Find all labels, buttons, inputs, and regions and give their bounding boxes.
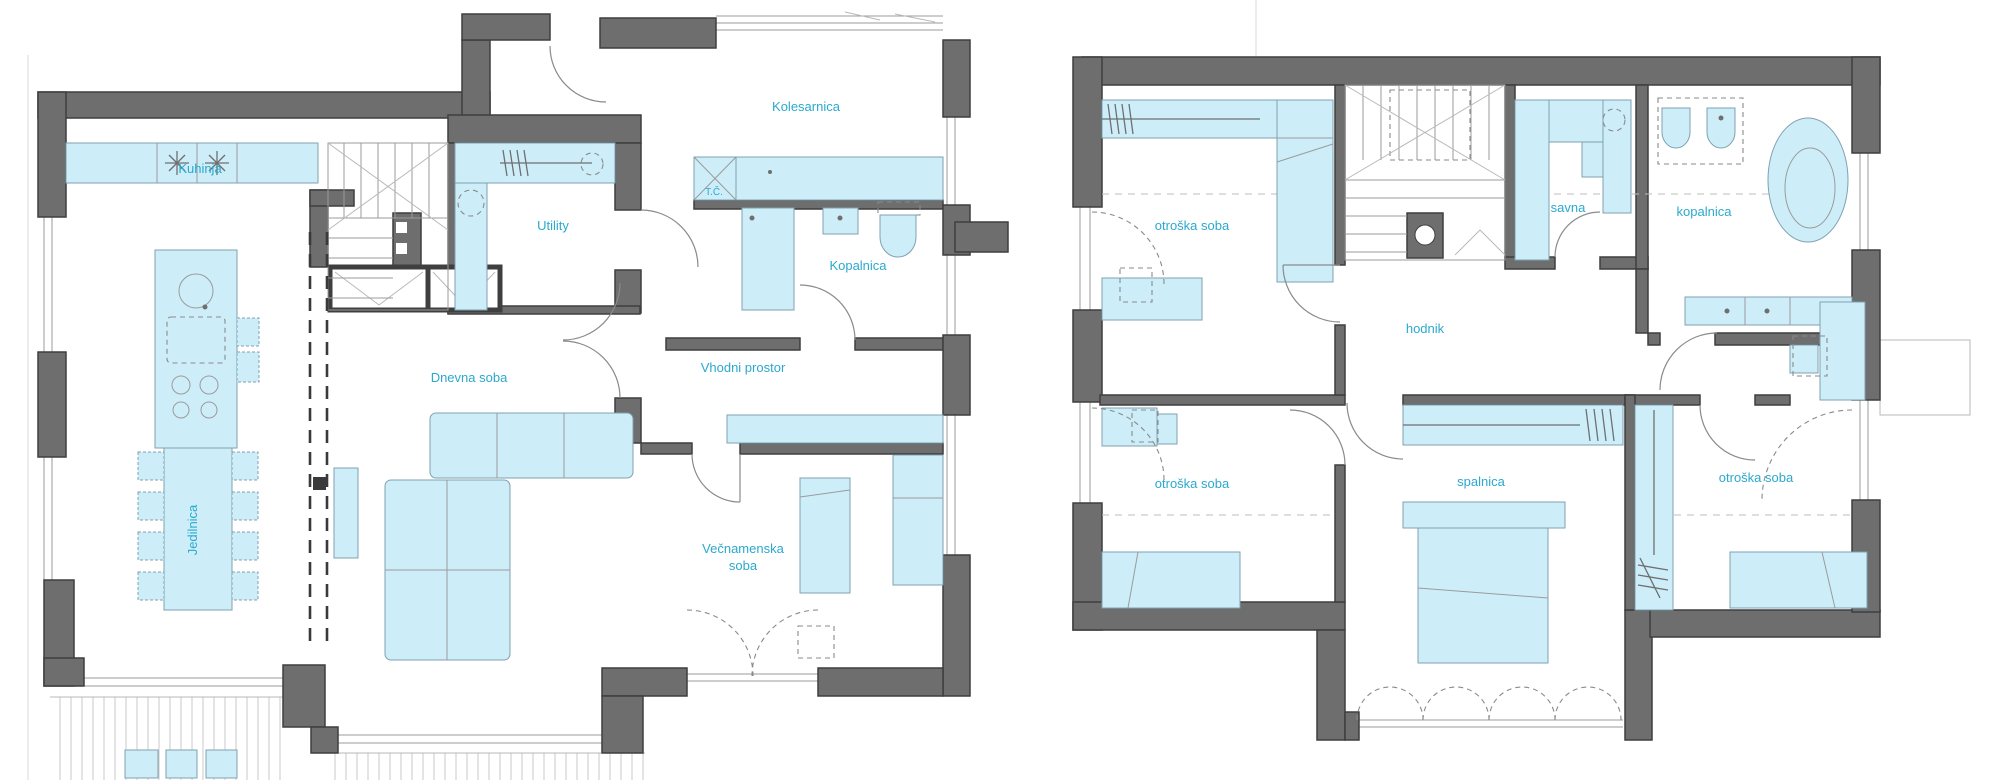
child-room-nw [1092, 100, 1333, 320]
terrace-stool [206, 750, 237, 778]
room-label-otroska-sw: otroška soba [1155, 476, 1230, 491]
dresser [1102, 408, 1157, 446]
bike-bench [736, 157, 943, 200]
room-label-vecnamenska-2: soba [729, 558, 758, 573]
room-label-tc: T.Č. [705, 185, 723, 198]
sauna-bench [1603, 100, 1631, 213]
room-label-vhodni-prostor: Vhodni prostor [701, 360, 786, 375]
room-label-dnevna-soba: Dnevna soba [431, 370, 508, 385]
bed [1102, 552, 1240, 608]
ground-floor-plan: Kuhinja Jedilnica Utility Kolesarnica T.… [38, 12, 1008, 780]
room-label-hodnik: hodnik [1406, 321, 1445, 336]
room-label-otroska-se: otroška soba [1719, 470, 1794, 485]
chair [138, 452, 164, 480]
terrace-stool [125, 750, 158, 778]
child-room-se [1635, 302, 1867, 610]
side-unit [1790, 345, 1818, 373]
room-labels-upper: otroška soba savna kopalnica hodnik otro… [1155, 200, 1794, 491]
sauna [1515, 100, 1631, 260]
room-label-vecnamenska-1: Večnamenska [702, 541, 784, 556]
hall-bench [727, 415, 943, 443]
child-room-sw [1092, 408, 1240, 608]
room-label-jedilnica: Jedilnica [185, 504, 200, 555]
shower [742, 208, 794, 310]
room-label-spalnica: spalnica [1457, 474, 1505, 489]
balcony-outline [1880, 340, 1970, 415]
room-label-savna: savna [1551, 200, 1586, 215]
chair [232, 452, 258, 480]
bed [1418, 528, 1548, 663]
chair [232, 532, 258, 560]
floor-plan-sheet: Kuhinja Jedilnica Utility Kolesarnica T.… [0, 0, 2000, 780]
room-label-kuhinja: Kuhinja [178, 161, 222, 176]
room-label-utility: Utility [537, 218, 569, 233]
kitchen [66, 143, 318, 448]
toilet [880, 215, 916, 257]
bike-room [694, 157, 943, 200]
multipurpose-room [687, 455, 943, 676]
bedroom [1357, 405, 1623, 720]
terrace-decking [50, 697, 645, 780]
room-label-kopalnica: Kopalnica [829, 258, 887, 273]
chair [138, 532, 164, 560]
roof-lines [1102, 194, 1850, 515]
headboard [1403, 502, 1565, 528]
room-label-kolesarnica: Kolesarnica [772, 99, 841, 114]
chair [138, 492, 164, 520]
wardrobe [893, 455, 943, 585]
chair [138, 572, 164, 600]
sauna-bench [1515, 100, 1549, 260]
side-unit [1157, 414, 1177, 444]
upper-floor-plan: otroška soba savna kopalnica hodnik otro… [1073, 57, 1970, 740]
media-unit [334, 468, 358, 558]
bed [1730, 552, 1867, 608]
bidet [1707, 108, 1735, 148]
post [313, 477, 326, 490]
room-label-otroska-nw: otroška soba [1155, 218, 1230, 233]
floor-plan-drawing: Kuhinja Jedilnica Utility Kolesarnica T.… [0, 0, 2000, 780]
chimney [393, 213, 421, 267]
terrace-stool [166, 750, 197, 778]
chair [232, 492, 258, 520]
toilet [1662, 108, 1690, 148]
utility-room [455, 143, 615, 310]
sofa [430, 413, 633, 478]
bed [1277, 100, 1333, 282]
side-table [798, 626, 834, 658]
bed [800, 478, 850, 593]
washbasin [823, 208, 858, 234]
sauna-step [1582, 142, 1603, 177]
sauna-bench [1549, 100, 1603, 142]
room-label-kopalnica-upper: kopalnica [1677, 204, 1733, 219]
bathtub [1768, 118, 1848, 242]
chair [232, 572, 258, 600]
